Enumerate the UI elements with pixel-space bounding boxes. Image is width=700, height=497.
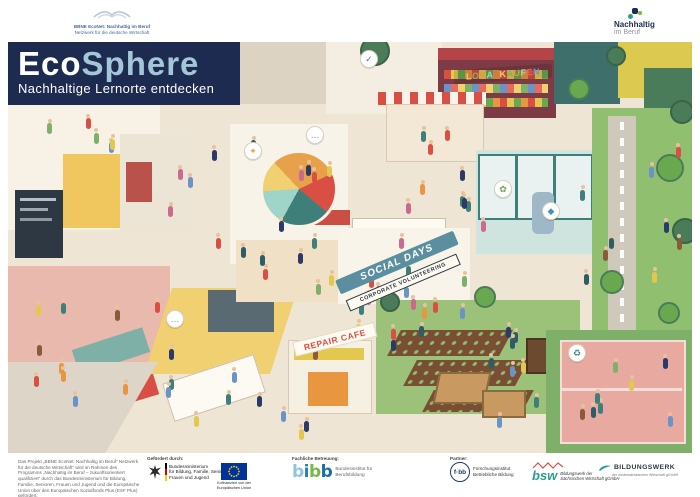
person-figure <box>194 416 199 427</box>
person-figure <box>241 247 246 258</box>
scene-block <box>560 388 682 391</box>
person-figure <box>232 372 237 383</box>
person-figure <box>115 310 120 321</box>
person-figure <box>421 131 426 142</box>
person-figure <box>510 338 515 349</box>
person-figure <box>521 362 526 373</box>
bibb-wordmark: bibb <box>292 464 332 481</box>
person-figure <box>584 274 589 285</box>
person-figure <box>419 326 424 337</box>
person-figure <box>420 184 425 195</box>
person-figure <box>216 238 221 249</box>
econet-logo-line2: Netzwerk für die deutsche Wirtschaft <box>52 30 172 36</box>
scene-block <box>8 362 158 453</box>
person-figure <box>281 411 286 422</box>
tree <box>568 78 590 100</box>
person-figure <box>445 130 450 141</box>
poster-title: EcoSphere <box>18 46 240 82</box>
person-figure <box>327 166 332 177</box>
tree <box>600 270 624 294</box>
scene-block <box>386 104 484 162</box>
scene-block <box>20 208 48 211</box>
speech-bubble: … <box>306 126 324 144</box>
person-figure <box>462 276 467 287</box>
person-figure <box>94 133 99 144</box>
person-figure <box>34 376 39 387</box>
person-figure <box>663 358 668 369</box>
flower-badge: ✿ <box>494 180 512 198</box>
person-figure <box>188 177 193 188</box>
eu-flag-icon <box>221 463 247 480</box>
tree <box>672 218 692 244</box>
speech-bubble: … <box>166 310 184 328</box>
person-figure <box>110 139 115 150</box>
nachhaltig-im-beruf-logo: Nachhaltig im Beruf <box>614 8 686 37</box>
person-figure <box>391 340 396 351</box>
person-figure <box>212 150 217 161</box>
water-drop-badge: ◆ <box>542 202 560 220</box>
scene-block <box>238 42 330 104</box>
betreuung-label: Fachliche Betreuung: <box>292 456 339 461</box>
person-figure <box>306 165 311 176</box>
person-figure <box>580 409 585 420</box>
person-figure <box>36 305 41 316</box>
bibb-logo: bibb Bundesinstitut für Berufsbildung <box>292 464 372 481</box>
person-figure <box>580 190 585 201</box>
person-figure <box>460 308 465 319</box>
top-bar: BBNE EcoNet: Nachhaltig im Beruf Netzwer… <box>0 0 700 42</box>
person-figure <box>609 238 614 249</box>
federal-eagle-icon <box>147 463 163 481</box>
person-figure <box>260 255 265 266</box>
scene-block <box>20 218 52 221</box>
person-figure <box>279 221 284 232</box>
person-figure <box>404 287 409 298</box>
person-figure <box>299 170 304 181</box>
eu-cofinance-logo: Kofinanziert von der Europäischen Union <box>216 463 252 490</box>
footer: Das Projekt „BBNE EcoNet: Nachhaltig im … <box>0 453 700 497</box>
person-figure <box>481 221 486 232</box>
person-figure <box>61 303 66 314</box>
person-figure <box>123 384 128 395</box>
person-figure <box>178 169 183 180</box>
person-figure <box>226 394 231 405</box>
person-figure <box>677 239 682 250</box>
person-figure <box>73 396 78 407</box>
person-figure <box>316 284 321 295</box>
scene-block <box>308 372 348 406</box>
scene-block <box>126 162 152 202</box>
person-figure <box>155 302 160 313</box>
person-figure <box>603 250 608 261</box>
fbb-logo: f·bb Forschungsinstitut Betriebliche Bil… <box>450 462 514 482</box>
tree <box>656 154 684 182</box>
person-figure <box>466 201 471 212</box>
person-figure <box>411 299 416 310</box>
person-figure <box>399 238 404 249</box>
tree <box>658 302 680 324</box>
person-figure <box>668 416 673 427</box>
person-figure <box>299 429 304 440</box>
person-figure <box>534 397 539 408</box>
person-figure <box>166 387 171 398</box>
recycle-badge: ♻ <box>568 344 586 362</box>
scene-block <box>20 198 56 201</box>
illustration: LOKAL KAUFEN SOCIAL DAYS CORPORATE VOLUN… <box>8 42 692 453</box>
person-figure <box>652 272 657 283</box>
tree <box>474 286 496 308</box>
wave-icon <box>598 463 612 472</box>
wings-icon <box>92 7 132 19</box>
scene-block <box>387 330 513 356</box>
person-figure <box>613 362 618 373</box>
person-figure <box>629 380 634 391</box>
eu-caption: Kofinanziert von der Europäischen Union <box>216 481 252 490</box>
fbb-caption: Forschungsinstitut Betriebliche Bildung <box>473 466 514 477</box>
globe-mural <box>260 150 338 228</box>
bsw-wordmark: bsw <box>532 470 557 482</box>
person-figure <box>510 366 515 377</box>
scene-block <box>482 390 526 418</box>
person-figure <box>591 407 596 418</box>
bildungswerk-logo: BILDUNGSWERK der niedersächsischen Wirts… <box>598 463 690 477</box>
person-figure <box>37 345 42 356</box>
person-figure <box>61 371 66 382</box>
person-figure <box>257 396 262 407</box>
person-figure <box>649 167 654 178</box>
person-figure <box>304 421 309 432</box>
person-figure <box>422 308 427 319</box>
poster-subtitle: Nachhaltige Lernorte entdecken <box>18 81 240 96</box>
gefoerdert-label: Gefördert durch: <box>147 456 184 461</box>
person-figure <box>462 198 467 209</box>
bildungswerk-caption: der niedersächsischen Wirtschaft gGmbH <box>612 473 690 477</box>
tree <box>606 46 626 66</box>
bibb-caption: Bundesinstitut für Berufsbildung <box>335 467 372 479</box>
person-figure <box>664 222 669 233</box>
scene-block <box>63 154 125 228</box>
dots-icon <box>628 8 642 20</box>
person-figure <box>169 349 174 360</box>
person-figure <box>298 253 303 264</box>
check-badge: ✓ <box>360 50 378 68</box>
title-block: EcoSphere Nachhaltige Lernorte entdecken <box>8 42 240 105</box>
person-figure <box>263 269 268 280</box>
partner-label: Partner: <box>450 456 468 461</box>
person-figure <box>497 417 502 428</box>
scene-block <box>620 122 624 336</box>
fbb-wordmark: f·bb <box>450 462 470 482</box>
person-figure <box>329 275 334 286</box>
person-figure <box>406 203 411 214</box>
spark-badge: ✦ <box>244 142 262 160</box>
person-figure <box>86 118 91 129</box>
person-figure <box>168 206 173 217</box>
tree <box>670 100 692 124</box>
poster: BBNE EcoNet: Nachhaltig im Beruf Netzwer… <box>0 0 700 497</box>
tricolor-bar <box>165 463 167 481</box>
person-figure <box>312 172 317 183</box>
nachhaltig-logo-line2: im Beruf <box>614 29 686 37</box>
person-figure <box>433 302 438 313</box>
econet-logo: BBNE EcoNet: Nachhaltig im Beruf Netzwer… <box>52 6 172 35</box>
funding-note: Das Projekt „BBNE EcoNet: Nachhaltig im … <box>18 459 142 497</box>
person-figure <box>489 358 494 369</box>
person-figure <box>312 238 317 249</box>
person-figure <box>598 403 603 414</box>
person-figure <box>460 170 465 181</box>
person-figure <box>391 329 396 340</box>
nachhaltig-logo-line1: Nachhaltig <box>614 20 686 29</box>
bildungswerk-wordmark: BILDUNGSWERK <box>614 464 675 471</box>
person-figure <box>676 147 681 158</box>
